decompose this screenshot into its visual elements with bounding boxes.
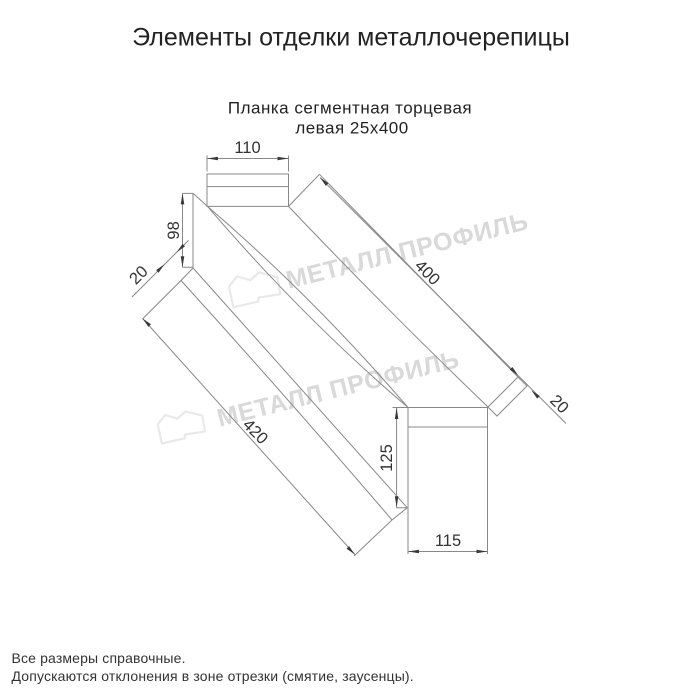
svg-text:98: 98 <box>165 221 183 239</box>
svg-text:Элементы отделки металлочерепи: Элементы отделки металлочерепицы <box>132 24 570 52</box>
svg-text:левая 25х400: левая 25х400 <box>295 119 408 138</box>
svg-text:115: 115 <box>435 532 461 550</box>
svg-text:110: 110 <box>234 139 260 157</box>
svg-text:125: 125 <box>378 444 396 472</box>
svg-text:Планка сегментная торцевая: Планка сегментная торцевая <box>228 99 472 118</box>
svg-text:Все размеры справочные.: Все размеры справочные. <box>12 650 186 666</box>
svg-text:Допускаются отклонения в зоне: Допускаются отклонения в зоне отрезки (с… <box>12 668 414 684</box>
